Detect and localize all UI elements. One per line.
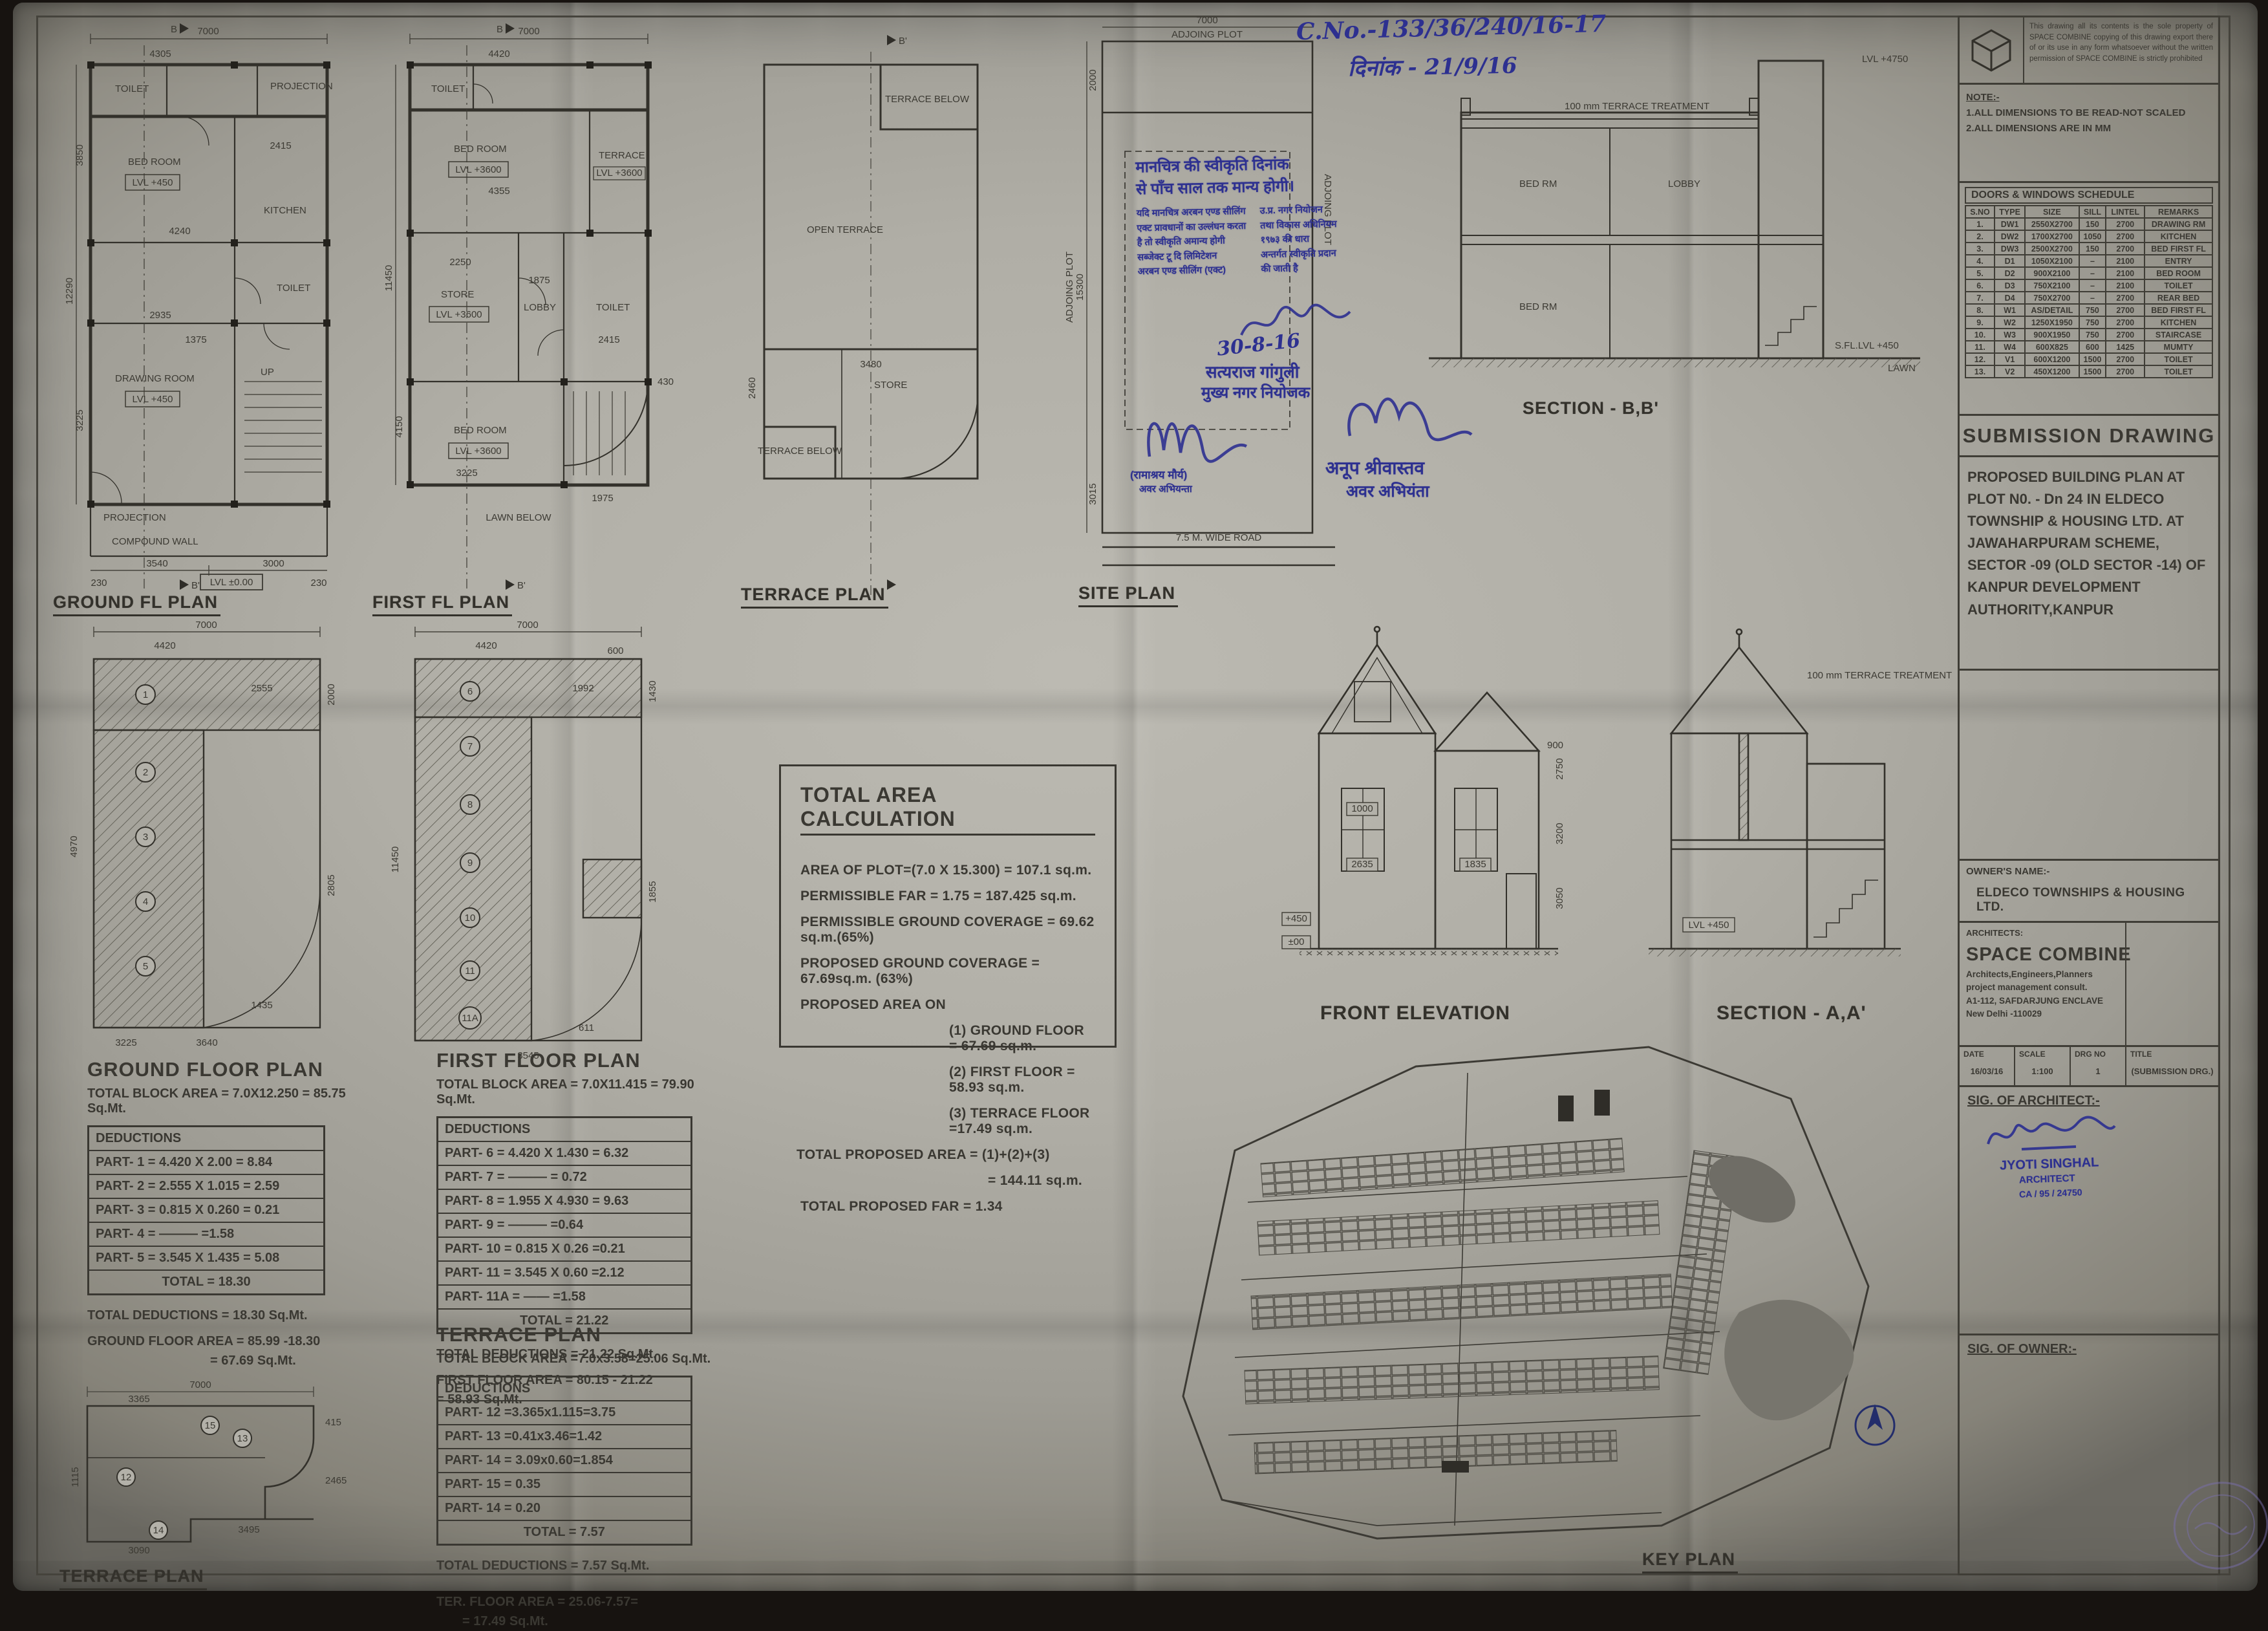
deduction-value: PART- 14 = 3.09x0.60=1.854	[438, 1449, 692, 1473]
room-label: BED ROOM	[454, 144, 507, 155]
calc-line: (1) GROUND FLOOR = 67.69 sq.m.	[949, 1023, 1095, 1054]
cell-size: 2500X2700	[2025, 243, 2079, 255]
table-row: DEDUCTIONS	[89, 1127, 325, 1151]
cell-remarks: TOILET	[2145, 365, 2212, 378]
dim-label: 7000	[197, 26, 219, 37]
cell-size: 1700X2700	[2025, 230, 2079, 243]
cell-remarks: BED FIRST FL	[2145, 304, 2212, 316]
cell-sill: 750	[2079, 316, 2106, 329]
sig-owner-label: SIG. OF OWNER:-	[1967, 1342, 2210, 1357]
dim-label: 4355	[488, 186, 509, 197]
cell-type: V2	[1995, 365, 2025, 378]
cell-sill: 150	[2079, 243, 2106, 255]
cell-lintel: 2700	[2106, 243, 2145, 255]
schedule-row: 12. V1 600X1200 1500 2700 TOILET	[1965, 353, 2212, 365]
cell-sill: –	[2079, 267, 2106, 279]
dim-label: 3000	[262, 558, 284, 569]
approval-stamp: मानचित्र की स्वीकृति दिनांक से पाँच साल …	[1135, 153, 1351, 279]
meta-value: 1:100	[2019, 1066, 2066, 1076]
owner-name: ELDECO TOWNSHIPS & HOUSING LTD.	[1976, 886, 2212, 914]
level-label: LVL +3600	[436, 309, 482, 320]
cell-sno: 13.	[1965, 365, 1995, 378]
meta-value: (SUBMISSION DRG.)	[2130, 1066, 2214, 1076]
dim-label: 2935	[149, 310, 171, 321]
dim-label: 4420	[475, 640, 497, 651]
table-row: PART- 2 = 2.555 X 1.015 = 2.59	[89, 1174, 325, 1198]
stamp-line: से पाँच साल तक मान्य होगी।	[1136, 174, 1350, 200]
doors-windows-schedule: DOORS & WINDOWS SCHEDULE S.NO TYPE SIZE …	[1960, 183, 2218, 416]
deduction-value: PART- 6 = 4.420 X 1.430 = 6.32	[438, 1141, 692, 1165]
dim-label: 1835	[1464, 859, 1486, 870]
stamp-line: यदि मानचित्र अरबन एण्ड सीलिंग	[1137, 204, 1246, 221]
deduction-value: PART- 5 = 3.545 X 1.435 = 5.08	[89, 1246, 325, 1270]
dim-label: 3225	[74, 409, 85, 431]
part-number: 11	[465, 966, 475, 977]
meta-row: DATE16/03/16 SCALE1:100 DRG NO1 TITLE(SU…	[1960, 1047, 2218, 1087]
dim-label: 7000	[517, 620, 538, 631]
dim-label: 1375	[185, 334, 206, 345]
dim-label: 4420	[154, 640, 175, 651]
dim-label: 15300	[1075, 274, 1086, 301]
stamp-line: उ.प्र. नगर नियोजन	[1259, 202, 1336, 219]
schedule-row: 10. W3 900X1950 750 2700 STAIRCASE	[1965, 329, 2212, 341]
table-row: PART- 4 = ——— =1.58	[89, 1222, 325, 1246]
cell-size: 2550X2700	[2025, 218, 2079, 230]
deduction-value: PART- 9 = ——— =0.64	[438, 1213, 692, 1237]
dim-label: 3015	[1087, 483, 1098, 504]
level-label: LVL +450	[1689, 920, 1729, 931]
table-row: PART- 15 = 0.35	[438, 1473, 692, 1496]
cell-type: DW1	[1995, 218, 2025, 230]
dim-label: 3200	[1554, 823, 1565, 844]
architect-section: ARCHITECTS: SPACE COMBINE Architects,Eng…	[1960, 923, 2218, 1047]
drawing-sheet: 7000 4305 TOILET PROJECTION BED ROOM LVL…	[13, 3, 2258, 1591]
terrace-plan-drawing: TERRACE BELOW OPEN TERRACE STORE TERRACE…	[719, 26, 997, 608]
deduction-value: PART- 7 = ——— = 0.72	[438, 1165, 692, 1189]
dim-label: 7000	[518, 26, 539, 37]
note-label: 100 mm TERRACE TREATMENT	[1807, 670, 1952, 681]
cell-lintel: 2700	[2106, 230, 2145, 243]
key-plan-drawing	[1106, 1008, 1933, 1584]
calc-line: = 144.11 sq.m.	[988, 1173, 1095, 1189]
cell-sno: 5.	[1965, 267, 1995, 279]
architect-line: project management consult.	[1966, 981, 2212, 994]
dim-label: 3365	[128, 1394, 149, 1405]
schedule-row: 3. DW3 2500X2700 150 2700 BED FIRST FL	[1965, 243, 2212, 255]
meta-header: DRG NO	[2075, 1050, 2121, 1059]
room-label: STORE	[874, 380, 907, 391]
cell-sno: 2.	[1965, 230, 1995, 243]
deductions-header: DEDUCTIONS	[89, 1127, 325, 1151]
divider	[2125, 923, 2126, 1045]
dim-label: 2465	[325, 1475, 347, 1486]
first-floor-plan-title: FIRST FL PLAN	[372, 592, 512, 616]
deduction-value: PART- 14 = 0.20	[438, 1496, 692, 1520]
deduction-value: PART- 4 = ——— =1.58	[89, 1222, 325, 1246]
section-bb-title: SECTION - B,B'	[1523, 398, 1662, 420]
dim-label: 2460	[747, 377, 758, 398]
level-label: LVL +450	[133, 394, 173, 405]
key-plan-title: KEY PLAN	[1642, 1550, 1738, 1573]
level-label: +450	[1285, 913, 1307, 924]
je-left-stamp-name: (रामाश्रय मौर्य)	[1130, 467, 1187, 482]
submission-heading: SUBMISSION DRAWING	[1960, 416, 2218, 457]
level-label: LVL +450	[133, 177, 173, 188]
cell-sno: 3.	[1965, 243, 1995, 255]
schedule-row: 4. D1 1050X2100 – 2100 ENTRY	[1965, 255, 2212, 267]
stamp-line: की जाती है	[1261, 261, 1338, 277]
cell-remarks: STAIRCASE	[2145, 329, 2212, 341]
cell-type: D2	[1995, 267, 2025, 279]
stamp-line: एक्ट प्रावधानों का उल्लंघन करता	[1137, 219, 1246, 236]
space-combine-logo-icon	[1960, 17, 2024, 83]
dim-label: 1115	[70, 1467, 81, 1487]
dim-label: 7000	[195, 620, 217, 631]
dim-label: 3050	[1554, 887, 1565, 909]
total-area-calculation-box: TOTAL AREA CALCULATION AREA OF PLOT=(7.0…	[779, 764, 1117, 1048]
deductions-header: DEDUCTIONS	[438, 1377, 692, 1401]
copyright-section: This drawing all its contents is the sol…	[1960, 17, 2218, 85]
stamp-line: तथा विकास अधिनियम	[1260, 217, 1337, 233]
table-row: PART- 9 = ——— =0.64	[438, 1213, 692, 1237]
calc-line: PROPOSED AREA ON	[800, 997, 1095, 1013]
section-aa-drawing: 100 mm TERRACE TREATMENT LVL +450	[1613, 594, 1917, 999]
dim-label: 4150	[394, 416, 405, 437]
table-subtitle: TOTAL BLOCK AREA = 7.0X12.250 = 85.75 Sq…	[87, 1086, 346, 1116]
cell-type: DW3	[1995, 243, 2025, 255]
dim-label: 2415	[598, 334, 619, 345]
spare-section	[1960, 671, 2218, 861]
deduction-value: PART- 10 = 0.815 X 0.26 =0.21	[438, 1237, 692, 1261]
table-title: GROUND FLOOR PLAN	[87, 1058, 346, 1081]
dim-label: 3640	[196, 1037, 217, 1048]
terrace-deduction-diagram: 7000 12 13 14 15 3365 415 1115 2465 3090…	[48, 1380, 339, 1568]
level-label: LVL ±0.00	[210, 577, 253, 588]
table-row: PART- 7 = ——— = 0.72	[438, 1165, 692, 1189]
room-label: LOBBY	[1668, 178, 1700, 189]
table-row: PART- 13 =0.41x3.46=1.42	[438, 1425, 692, 1449]
table-row: PART- 11A = —— =1.58	[438, 1285, 692, 1309]
part-number: 14	[153, 1525, 164, 1536]
calc-line: TOTAL PROPOSED FAR = 1.34	[800, 1199, 1095, 1215]
cell-remarks: KITCHEN	[2145, 230, 2212, 243]
cell-sill: –	[2079, 292, 2106, 304]
schedule-row: 8. W1 AS/DETAIL 750 2700 BED FIRST FL	[1965, 304, 2212, 316]
col-header: SILL	[2079, 206, 2106, 218]
deductions-header: DEDUCTIONS	[438, 1118, 692, 1142]
section-marker: B	[171, 24, 177, 35]
cell-sill: 750	[2079, 304, 2106, 316]
table-title: FIRST FLOOR PLAN	[436, 1049, 714, 1072]
stamp-right-column: उ.प्र. नगर नियोजनतथा विकास अधिनियम१९७३ क…	[1259, 202, 1338, 277]
schedule-row: 1. DW1 2550X2700 150 2700 DRAWING RM	[1965, 218, 2212, 230]
dim-label: 415	[325, 1417, 341, 1428]
room-label: TERRACE BELOW	[885, 94, 970, 105]
copyright-text: This drawing all its contents is the sol…	[2024, 17, 2218, 83]
cell-sno: 7.	[1965, 292, 1995, 304]
cell-sill: 1500	[2079, 353, 2106, 365]
first-floor-deduction-diagram: 7000 4420 6 7 8 9 10 11 11A 600 1992 143…	[370, 614, 674, 1079]
meta-header: DATE	[1963, 1050, 2010, 1059]
architect-label: ARCHITECTS:	[1966, 928, 2212, 938]
ground-floor-plan-title: GROUND FL PLAN	[53, 592, 220, 616]
cell-size: 750X2700	[2025, 292, 2079, 304]
section-bb-drawing: 100 mm TERRACE TREATMENT LVL +4750 BED R…	[1371, 22, 1940, 420]
dim-label: 1435	[251, 1000, 272, 1011]
cell-lintel: 2700	[2106, 304, 2145, 316]
calc-title: TOTAL AREA CALCULATION	[800, 783, 1095, 836]
architect-stamp-reg: CA / 95 / 24750	[2019, 1187, 2082, 1199]
schedule-row: 9. W2 1250X1950 750 2700 KITCHEN	[1965, 316, 2212, 329]
note-line: 1.ALL DIMENSIONS TO BE READ-NOT SCALED	[1966, 105, 2212, 121]
schedule-row: 2. DW2 1700X2700 1050 2700 KITCHEN	[1965, 230, 2212, 243]
table-row: TOTAL = 18.30	[89, 1270, 325, 1295]
part-number: 12	[121, 1472, 132, 1483]
je-right-stamp-title: अवर अभियंता	[1346, 480, 1429, 502]
cell-lintel: 2100	[2106, 255, 2145, 267]
table-footer: TOTAL DEDUCTIONS = 7.57 Sq.Mt. TER. FLOO…	[436, 1556, 714, 1631]
dim-label: 3540	[146, 558, 167, 569]
dim-label: 900	[1547, 740, 1563, 751]
dim-label: 2250	[449, 257, 471, 268]
cell-sno: 9.	[1965, 316, 1995, 329]
cell-sill: 1500	[2079, 365, 2106, 378]
terrace-table: TERRACE PLAN TOTAL BLOCK AREA =7.0x3.58=…	[436, 1323, 714, 1631]
notes-section: NOTE:- 1.ALL DIMENSIONS TO BE READ-NOT S…	[1960, 85, 2218, 183]
meta-drgno: DRG NO1	[2071, 1047, 2126, 1085]
deduction-value: PART- 12 =3.365x1.115=3.75	[438, 1401, 692, 1425]
dim-label: 12290	[64, 277, 75, 305]
je-right-stamp-name: अनूप श्रीवास्तव	[1325, 455, 1424, 480]
room-label: PROJECTION	[103, 512, 166, 523]
total-deductions: TOTAL DEDUCTIONS = 7.57 Sq.Mt.	[436, 1556, 714, 1575]
room-label: DRAWING ROOM	[115, 373, 195, 384]
meta-value: 16/03/16	[1963, 1066, 2010, 1076]
table-footer: TOTAL DEDUCTIONS = 18.30 Sq.Mt. GROUND F…	[87, 1306, 346, 1370]
dim-label: 3225	[115, 1037, 136, 1048]
cell-sill: –	[2079, 279, 2106, 292]
table-row: DEDUCTIONS	[438, 1118, 692, 1142]
cell-sno: 10.	[1965, 329, 1995, 341]
part-number: 2	[143, 767, 148, 778]
dim-label: 2635	[1351, 859, 1373, 870]
cell-remarks: MUMTY	[2145, 341, 2212, 353]
level-label: ±00	[1289, 936, 1305, 947]
cell-type: D1	[1995, 255, 2025, 267]
calc-line: (3) TERRACE FLOOR =17.49 sq.m.	[949, 1106, 1095, 1137]
dim-label: 2750	[1554, 758, 1565, 779]
floor-area-result: = 17.49 Sq.Mt.	[462, 1612, 714, 1631]
dim-label: 2555	[251, 683, 272, 694]
cell-remarks: BED FIRST FL	[2145, 243, 2212, 255]
note-label: 100 mm TERRACE TREATMENT	[1565, 101, 1709, 112]
cell-type: D3	[1995, 279, 2025, 292]
floor-area: TER. FLOOR AREA = 25.06-7.57=	[436, 1592, 714, 1612]
meta-date: DATE16/03/16	[1960, 1047, 2015, 1085]
room-label: COMPOUND WALL	[112, 536, 198, 547]
dim-label: 230	[91, 578, 107, 589]
room-label: BED ROOM	[454, 425, 507, 436]
dim-label: 1855	[647, 881, 658, 902]
cell-type: V1	[1995, 353, 2025, 365]
level-label: LVL +4750	[1862, 54, 1908, 65]
table-row: DEDUCTIONS	[438, 1377, 692, 1401]
room-label: BED RM	[1519, 301, 1557, 312]
architect-name: SPACE COMBINE	[1966, 944, 2212, 966]
architect-stamp-title: ARCHITECT	[2019, 1172, 2075, 1185]
architect-signature-section: SIG. OF ARCHITECT:- JYOTI SINGHAL ARCHIT…	[1960, 1087, 2218, 1335]
room-label: TOILET	[277, 283, 310, 294]
cell-sno: 11.	[1965, 341, 1995, 353]
room-label: TOILET	[115, 83, 149, 94]
deduction-total: TOTAL = 18.30	[89, 1270, 325, 1295]
cell-lintel: 2700	[2106, 316, 2145, 329]
dim-label: 7000	[189, 1379, 211, 1390]
architect-line: A1-112, SAFDARJUNG ENCLAVE	[1966, 995, 2212, 1008]
north-arrow-icon	[1856, 1404, 1894, 1445]
title-block: This drawing all its contents is the sol…	[1958, 16, 2220, 1575]
calc-line: (2) FIRST FLOOR = 58.93 sq.m.	[949, 1064, 1095, 1096]
dim-label: 1975	[592, 493, 613, 504]
dim-label: 1430	[647, 680, 658, 702]
schedule-row: 5. D2 900X2100 – 2100 BED ROOM	[1965, 267, 2212, 279]
room-label: STORE	[441, 289, 474, 300]
dim-label: 11450	[383, 265, 394, 292]
cell-sill: 150	[2079, 218, 2106, 230]
cell-size: 750X2100	[2025, 279, 2079, 292]
table-title: TERRACE PLAN	[436, 1323, 714, 1346]
stamp-line: अरबन एण्ड सीलिंग (एक्ट)	[1138, 263, 1247, 279]
cell-size: 450X1200	[2025, 365, 2079, 378]
stamp-line: १९७३ की धारा	[1260, 232, 1337, 248]
section-marker: B	[497, 24, 503, 35]
cell-remarks: BED ROOM	[2145, 267, 2212, 279]
room-label: UP	[261, 367, 274, 378]
room-label: LAWN BELOW	[486, 512, 551, 523]
cell-type: W1	[1995, 304, 2025, 316]
terrace-small-title: TERRACE PLAN	[59, 1566, 207, 1590]
table-row: PART- 3 = 0.815 X 0.260 = 0.21	[89, 1198, 325, 1222]
deduction-value: PART- 13 =0.41x3.46=1.42	[438, 1425, 692, 1449]
table-row: TOTAL = 7.57	[438, 1520, 692, 1545]
room-label: TERRACE BELOW	[758, 446, 842, 457]
part-number: 5	[143, 961, 148, 972]
cell-sill: –	[2079, 255, 2106, 267]
cell-sno: 6.	[1965, 279, 1995, 292]
cell-size: 900X2100	[2025, 267, 2079, 279]
deduction-value: PART- 15 = 0.35	[438, 1473, 692, 1496]
dim-label: 4240	[169, 226, 190, 237]
road-label: 7.5 M. WIDE ROAD	[1176, 532, 1262, 543]
part-number: 15	[205, 1420, 216, 1431]
section-marker: B'	[899, 36, 907, 47]
col-header: TYPE	[1995, 206, 2025, 218]
cell-lintel: 2700	[2106, 329, 2145, 341]
schedule-row: 7. D4 750X2700 – 2700 REAR BED	[1965, 292, 2212, 304]
calc-line: PERMISSIBLE FAR = 1.75 = 187.425 sq.m.	[800, 889, 1095, 904]
room-label: BED ROOM	[128, 157, 181, 167]
cell-sill: 600	[2079, 341, 2106, 353]
room-label: LAWN	[1888, 363, 1916, 374]
deduction-value: PART- 2 = 2.555 X 1.015 = 2.59	[89, 1174, 325, 1198]
je-left-signature	[1138, 398, 1254, 470]
cell-remarks: TOILET	[2145, 279, 2212, 292]
note-line: 2.ALL DIMENSIONS ARE IN MM	[1966, 121, 2212, 136]
architect-signature	[1979, 1112, 2121, 1157]
cell-type: D4	[1995, 292, 2025, 304]
table-row: PART- 11 = 3.545 X 0.60 =2.12	[438, 1261, 692, 1285]
part-number: 6	[467, 686, 473, 697]
dim-label: 4305	[149, 49, 171, 59]
deduction-total: TOTAL = 7.57	[438, 1520, 692, 1545]
cell-sno: 1.	[1965, 218, 1995, 230]
calc-line: AREA OF PLOT=(7.0 X 15.300) = 107.1 sq.m…	[800, 863, 1095, 878]
cell-type: W3	[1995, 329, 2025, 341]
table-row: PART- 12 =3.365x1.115=3.75	[438, 1401, 692, 1425]
cell-remarks: ENTRY	[2145, 255, 2212, 267]
dim-label: 1000	[1351, 803, 1373, 814]
cell-lintel: 2700	[2106, 218, 2145, 230]
table-row: PART- 5 = 3.545 X 1.435 = 5.08	[89, 1246, 325, 1270]
cell-remarks: TOILET	[2145, 353, 2212, 365]
dim-label: 611	[579, 1022, 594, 1033]
project-description: PROPOSED BUILDING PLAN AT PLOT N0. - Dn …	[1960, 457, 2218, 671]
architect-line: New Delhi -110029	[1966, 1008, 2212, 1021]
cell-size: AS/DETAIL	[2025, 304, 2079, 316]
dim-label: 11450	[390, 847, 401, 873]
cell-size: 600X1200	[2025, 353, 2079, 365]
schedule-row: 11. W4 600X825 600 1425 MUMTY	[1965, 341, 2212, 353]
table-subtitle: TOTAL BLOCK AREA = 7.0X11.415 = 79.90 Sq…	[436, 1077, 714, 1107]
ground-floor-deduction-diagram: 7000 4420 1 2 3 4 5 2555 2000 4970 2805 …	[48, 614, 352, 1066]
meta-header: SCALE	[2019, 1050, 2066, 1059]
stamp-line: अन्तर्गत स्वीकृति प्रदान	[1261, 246, 1338, 263]
dim-label: 2415	[270, 140, 291, 151]
meta-scale: SCALE1:100	[2015, 1047, 2071, 1085]
sig-architect-label: SIG. OF ARCHITECT:-	[1967, 1094, 2210, 1108]
cell-size: 900X1950	[2025, 329, 2079, 341]
cell-lintel: 2100	[2106, 279, 2145, 292]
cell-sno: 4.	[1965, 255, 1995, 267]
part-number: 13	[237, 1433, 248, 1444]
room-label: TOILET	[431, 83, 465, 94]
dim-label: 230	[310, 578, 326, 589]
cell-remarks: KITCHEN	[2145, 316, 2212, 329]
dim-label: 1875	[528, 275, 550, 286]
dim-label: 4420	[488, 49, 509, 59]
architect-stamp-name: JYOTI SINGHAL	[2000, 1155, 2099, 1173]
schedule-row: 6. D3 750X2100 – 2100 TOILET	[1965, 279, 2212, 292]
adjoining-plot-label: ADJOING PLOT	[1171, 29, 1243, 40]
cell-lintel: 2100	[2106, 267, 2145, 279]
level-label: LVL +3600	[596, 167, 642, 178]
stamp-left-column: यदि मानचित्र अरबन एण्ड सीलिंगएक्ट प्रावध…	[1137, 204, 1247, 279]
meta-header: TITLE	[2130, 1050, 2214, 1059]
ground-floor-table: GROUND FLOOR PLAN TOTAL BLOCK AREA = 7.0…	[87, 1058, 346, 1370]
room-label: TERRACE	[599, 150, 645, 161]
owner-label: OWNER'S NAME:-	[1966, 866, 2212, 877]
cell-size: 1250X1950	[2025, 316, 2079, 329]
col-header: S.NO	[1965, 206, 1995, 218]
schedule-title: DOORS & WINDOWS SCHEDULE	[1965, 187, 2213, 204]
part-number: 3	[143, 832, 148, 843]
total-deductions: TOTAL DEDUCTIONS = 18.30 Sq.Mt.	[87, 1306, 346, 1325]
dim-label: 2805	[326, 874, 337, 896]
round-office-stamp	[2166, 1471, 2268, 1581]
site-plan-title: SITE PLAN	[1078, 583, 1178, 607]
cell-remarks: REAR BED	[2145, 292, 2212, 304]
dim-label: 4970	[69, 836, 80, 857]
